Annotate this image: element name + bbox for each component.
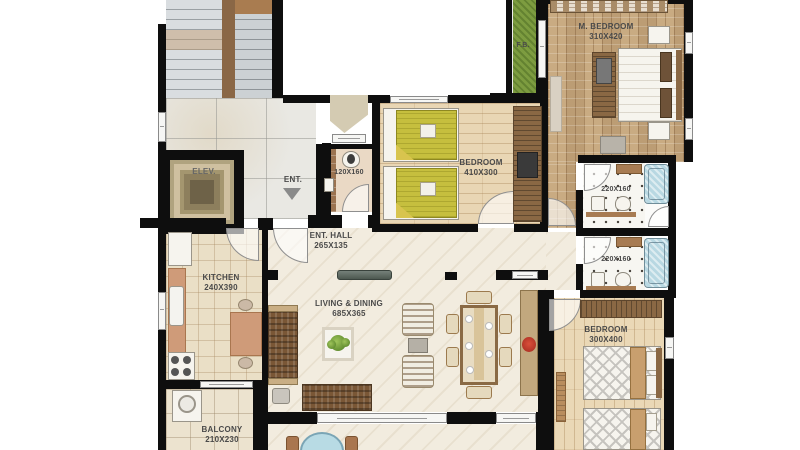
staircase-stringer [222, 0, 235, 98]
room-label-kitchen: KITCHEN240X390 [203, 273, 240, 292]
wall [538, 290, 546, 412]
plant-leaf [327, 340, 336, 349]
wall [576, 264, 583, 290]
kitchen-chair-bottom [238, 357, 253, 369]
m-bedroom-headboard [676, 50, 682, 120]
wall [578, 155, 676, 163]
room-label-m-bedroom: M. BEDROOM310X420 [579, 22, 634, 41]
dining-chair [466, 291, 492, 304]
dining-chair [466, 386, 492, 399]
toilet-sink [324, 178, 334, 192]
plant-leaf [341, 338, 350, 347]
bathroom1-bidet [591, 196, 605, 211]
terrace-chair [345, 436, 358, 450]
washing-machine-door [178, 395, 196, 413]
m-bedroom-nightstand-top [648, 26, 670, 44]
wall [536, 412, 548, 450]
wall [664, 298, 674, 450]
wall [506, 0, 512, 97]
m-bedroom-garden-door [538, 20, 546, 78]
wall [140, 218, 226, 228]
bedroom2-rug [556, 372, 566, 422]
floor-lamp [272, 388, 290, 404]
wall [447, 412, 496, 424]
bathroom2-toilet [615, 272, 631, 287]
kitchen-chair-top [238, 299, 253, 311]
living-terrace-window2 [496, 413, 536, 423]
wall [272, 0, 283, 98]
flower-pot [522, 337, 536, 352]
sofa-armrest [268, 378, 298, 385]
plate [465, 315, 473, 323]
terrace-chair [286, 436, 299, 450]
plate [466, 366, 474, 374]
wall [668, 155, 676, 298]
lobby-window [158, 112, 166, 142]
dining-chair [499, 314, 512, 334]
wall [514, 224, 547, 232]
room-label-bath2-dims: 220X160 [601, 256, 630, 264]
room-label-living: LIVING & DINING685X365 [315, 299, 383, 318]
plate [465, 342, 473, 350]
living-terrace-window1 [317, 413, 447, 423]
living-sofa-bottom [302, 384, 372, 411]
hall-window [512, 271, 538, 279]
room-label-bedroom1: BEDROOM410X300 [459, 158, 502, 177]
m-bedroom-window2 [685, 118, 693, 140]
wall [158, 228, 166, 450]
staircase-right-accent [235, 0, 272, 14]
room-label-balcony: BALCONY210X230 [202, 425, 243, 444]
m-bedroom-bed [618, 48, 682, 122]
m-bedroom-window1 [685, 32, 693, 54]
wall [372, 96, 380, 232]
entrance-arrow-icon [283, 188, 301, 200]
m-bedroom-pillow2 [660, 88, 672, 118]
sofa-armrest [268, 305, 298, 312]
kitchen-sink [169, 286, 184, 326]
armchair-2 [402, 355, 434, 388]
kitchen-fridge [168, 232, 192, 266]
bathroom2-bathtub [644, 238, 669, 288]
duct-shaft [330, 95, 368, 133]
room-label-toilet-dims: 120X160 [334, 169, 363, 177]
bedroom2-wardrobe [580, 300, 662, 318]
bathroom1-sink-counter [616, 164, 642, 174]
wall [368, 215, 380, 228]
bedroom2-bed2-blanket [630, 409, 646, 450]
toilet-window [332, 134, 366, 143]
living-sofa-left [268, 310, 298, 380]
m-bedroom-pillow1 [660, 52, 672, 82]
room-label-bath1-dims: 220X160 [601, 186, 630, 194]
bathroom1-toilet [615, 196, 631, 211]
bathroom2-bidet [591, 272, 605, 287]
wall [445, 272, 457, 280]
kitchen-window [158, 292, 166, 330]
elevator-cab-core [190, 180, 214, 204]
toilet-wc-seat [347, 154, 355, 164]
staircase-right-flight [235, 0, 272, 98]
bedroom2-window [665, 337, 674, 359]
dining-chair [499, 347, 512, 367]
balcony-window [200, 381, 253, 388]
wall [380, 224, 478, 232]
bedroom1-bed2-pillow [420, 182, 436, 196]
floor-plan: ELEV. ENT. 120X160 BEDROOM410X300 M. BED… [0, 0, 800, 450]
stove-burner [171, 356, 179, 364]
wall [308, 215, 342, 228]
ac-unit [337, 270, 392, 280]
dining-chair [446, 314, 459, 334]
bedroom1-window [390, 96, 448, 103]
m-bedroom-nightstand-bottom [648, 122, 670, 140]
wall [283, 95, 330, 103]
table-runner [474, 308, 484, 380]
bathroom2-sink-counter [616, 237, 642, 247]
wall [580, 290, 676, 298]
wall [576, 228, 676, 236]
wall [262, 270, 278, 280]
m-bedroom-bench [600, 136, 626, 154]
hallway-floor [546, 232, 576, 290]
m-bedroom-closet [550, 0, 668, 13]
room-label-flower-bed: F.B. [516, 42, 529, 50]
dining-chair [446, 347, 459, 367]
side-table [408, 338, 428, 353]
room-label-ent-hall: ENT. HALL265X135 [310, 231, 353, 250]
armchair-1 [402, 303, 434, 336]
room-label-elevator: ELEV. [192, 167, 215, 177]
bedroom2-bed1-blanket [630, 347, 646, 399]
bedroom1-wardrobe-mirror [517, 152, 538, 178]
wall [262, 412, 317, 424]
bathroom1-mat [586, 212, 636, 217]
plate [485, 350, 493, 358]
plate [485, 322, 493, 330]
kitchen-table [230, 312, 262, 356]
stove-burner [171, 368, 179, 376]
bathroom2-mat [586, 286, 636, 290]
stove-burner [183, 356, 191, 364]
room-label-bedroom2: BEDROOM300X400 [584, 325, 627, 344]
m-bedroom-rug [550, 76, 562, 132]
bedroom2-bed2-pillow [646, 413, 657, 431]
staircase-left-accent [166, 30, 222, 50]
m-bedroom-tv-panel [596, 58, 612, 84]
bedroom1-bed1-pillow [420, 124, 436, 138]
room-label-entrance: ENT. [284, 175, 302, 185]
wall [490, 93, 540, 103]
bedroom2-bed1-headboard [656, 348, 662, 398]
bathroom1-bathtub [644, 164, 669, 204]
stove-burner [183, 368, 191, 376]
